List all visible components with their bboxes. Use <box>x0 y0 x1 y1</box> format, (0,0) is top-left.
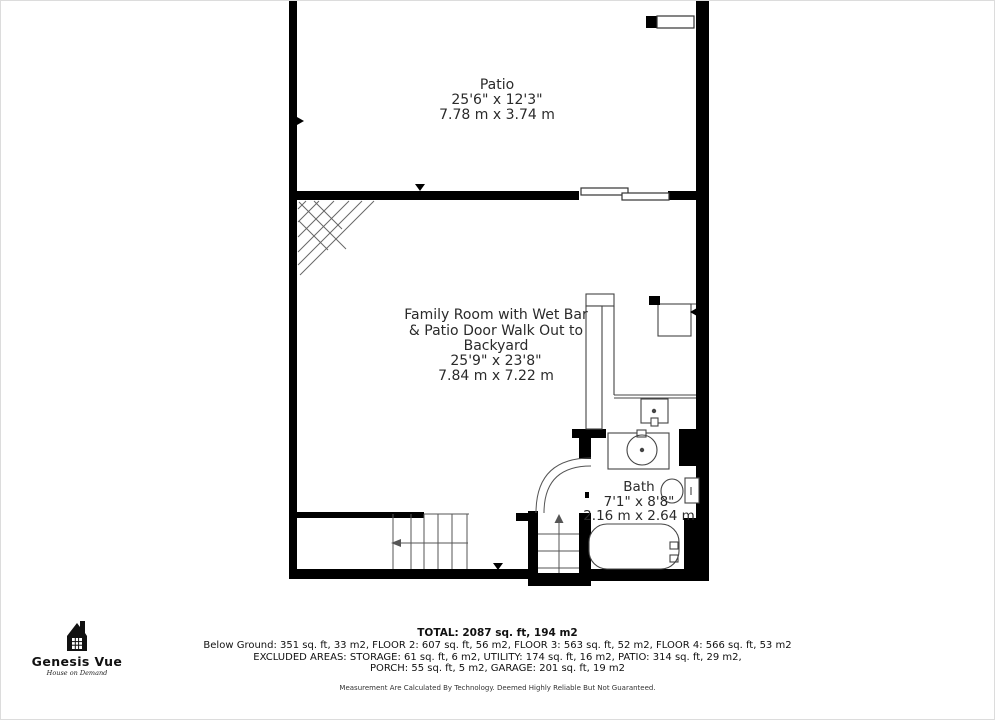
corner-stairs <box>298 201 374 275</box>
bathtub <box>589 524 679 569</box>
bath-bottom-right-block <box>684 518 709 573</box>
logo-tagline-text: House on Demand <box>29 669 125 677</box>
left-wall <box>289 1 297 579</box>
patio-gate <box>657 16 694 28</box>
bar-fridge <box>658 304 691 336</box>
stairwell-bottom-wall <box>528 573 591 586</box>
lower-stairs <box>393 514 469 569</box>
stairwell-top-stub <box>516 513 538 521</box>
disclaimer-text: Measurement Are Calculated By Technology… <box>1 684 994 692</box>
sink-faucet <box>651 418 658 426</box>
gate-post <box>646 16 657 28</box>
bath-top-right-block <box>679 429 709 466</box>
stair-corridor-wall <box>297 512 424 518</box>
patio-family-wall-right <box>668 191 709 200</box>
excluded-areas-text-2: PORCH: 55 sq. ft, 5 m2, GARAGE: 201 sq. … <box>1 663 994 674</box>
genesis-vue-logo: Genesis Vue House on Demand <box>29 619 125 677</box>
wall-tick <box>493 563 503 570</box>
family-room-label: Family Room with Wet Bar & Patio Door Wa… <box>361 308 631 355</box>
bar-counter-cap <box>586 294 614 306</box>
bath-top-left-wall-h <box>572 429 606 438</box>
patio-family-wall-left <box>289 191 579 200</box>
vanity-drain <box>640 448 644 452</box>
sliding-patio-door <box>581 188 669 200</box>
sliding-door-panel <box>622 193 669 200</box>
floor-areas-text: Below Ground: 351 sq. ft, 33 m2, FLOOR 2… <box>1 640 994 651</box>
bath-vanity <box>608 433 669 469</box>
bath-top-left-wall-v <box>579 438 591 459</box>
bar-fridge-corner <box>649 296 660 305</box>
total-area-text: TOTAL: 2087 sq. ft, 194 m2 <box>1 627 994 639</box>
sliding-door-panel <box>581 188 628 195</box>
wall-tick <box>415 184 425 191</box>
family-room-dimensions-metric: 7.84 m x 7.22 m <box>361 369 631 385</box>
house-window <box>72 638 82 649</box>
house-icon <box>64 619 90 653</box>
family-bottom-wall <box>289 569 538 579</box>
logo-brand-text: Genesis Vue <box>29 654 125 669</box>
bath-dimensions-metric: 2.16 m x 2.64 m <box>578 509 700 524</box>
patio-dimensions-metric: 7.78 m x 3.74 m <box>297 108 697 124</box>
stairwell-up-arrow <box>555 514 564 523</box>
sink-drain <box>652 409 656 413</box>
excluded-areas-text: EXCLUDED AREAS: STORAGE: 61 sq. ft, 6 m2… <box>1 652 994 663</box>
floor-plan-page: Patio 25'6" x 12'3" 7.78 m x 3.74 m Fami… <box>0 0 995 720</box>
bath-label: Bath <box>578 480 700 495</box>
stairwell-stairs <box>538 520 579 573</box>
